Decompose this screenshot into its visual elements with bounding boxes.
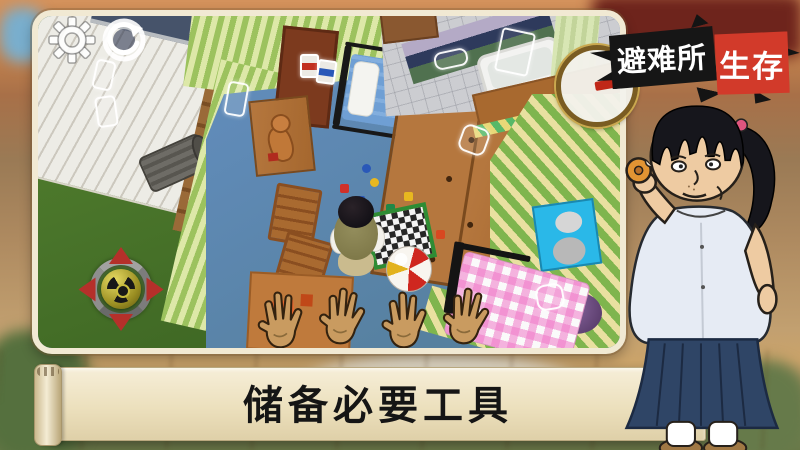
toy (404, 192, 413, 201)
girl-shirt-button (700, 245, 704, 249)
logo-text-survival: 生存 (719, 40, 785, 86)
girl-hand-down (758, 285, 776, 313)
collectible-bottle-outline (94, 95, 119, 129)
radiation-icon (107, 275, 135, 303)
toy (340, 184, 349, 193)
character-girl (604, 94, 800, 450)
camera-rotate-button[interactable] (100, 16, 148, 64)
girl-pupil (679, 164, 683, 168)
movement-joystick[interactable] (82, 250, 160, 328)
paint-can-collectible (315, 59, 337, 85)
camera-rotate-icon (100, 16, 148, 64)
player-top-view (326, 196, 386, 284)
girl-pupil (709, 162, 713, 166)
desk (248, 95, 316, 177)
reaching-hand (251, 286, 306, 352)
settings-button[interactable] (48, 16, 96, 64)
donut-hole (635, 166, 643, 174)
girl-shirt-button (701, 285, 705, 289)
girl-freckle (693, 189, 695, 191)
joystick-arrow-up[interactable] (109, 247, 133, 264)
joystick-knob[interactable] (101, 269, 141, 309)
player-hair (338, 196, 374, 228)
gear-icon (48, 16, 96, 64)
reaching-hand (314, 282, 368, 347)
toy (362, 164, 371, 173)
logo-text-shelter: 避难所 (616, 34, 708, 81)
game-viewport (32, 10, 626, 354)
logo-black-block: 避难所 (607, 26, 718, 90)
logo-red-block: 生存 (714, 31, 791, 96)
marilyn-poster (532, 198, 603, 272)
girl-sock (667, 422, 695, 446)
red-book (268, 153, 279, 162)
toy (370, 178, 379, 187)
girl-sock (709, 422, 737, 446)
banner-roll-edge (34, 364, 62, 446)
beach-ball (386, 246, 432, 292)
screenshot-stage: 避难所 生存 储备必要工具 (0, 0, 800, 450)
joystick-arrow-left[interactable] (79, 278, 96, 302)
girl-freckle (688, 186, 690, 188)
reaching-hand (437, 282, 493, 349)
logo-brush-spike (688, 12, 708, 28)
reaching-hand (376, 287, 429, 352)
toy (436, 230, 445, 239)
